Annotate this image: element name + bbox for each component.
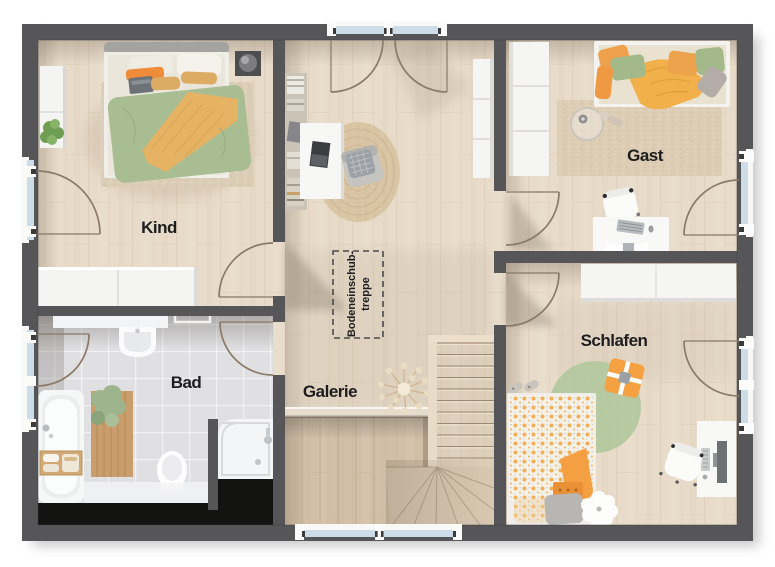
svg-text:Bad: Bad: [171, 373, 202, 392]
svg-text:Gast: Gast: [627, 146, 664, 165]
svg-text:Bodeneinschub-: Bodeneinschub-: [346, 251, 358, 338]
svg-text:Kind: Kind: [141, 218, 177, 237]
svg-text:treppe: treppe: [360, 277, 372, 311]
svg-text:Schlafen: Schlafen: [581, 331, 648, 350]
svg-text:Galerie: Galerie: [303, 382, 357, 401]
